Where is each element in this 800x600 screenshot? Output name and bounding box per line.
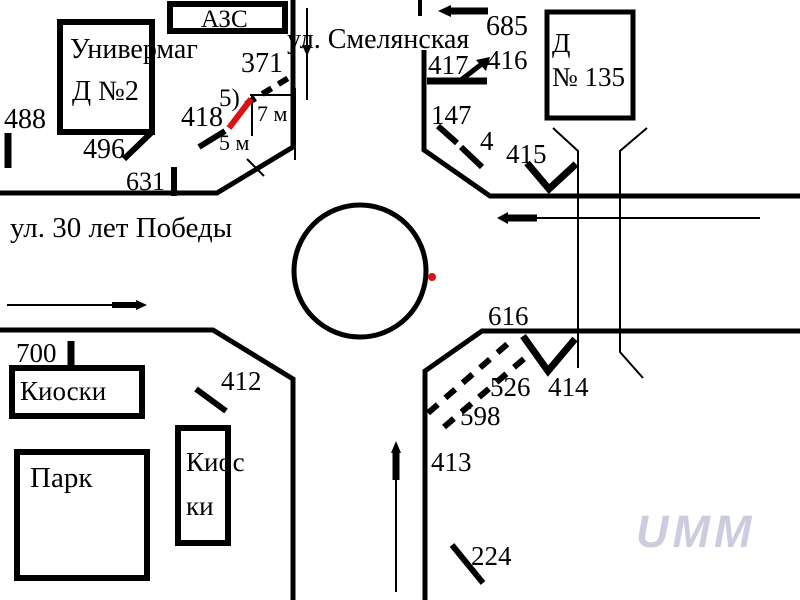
building-label-house135-2: № 135 <box>552 64 625 91</box>
point-label-418: 418 <box>181 104 223 132</box>
point-label-413: 413 <box>431 449 472 476</box>
mark-147-b <box>461 147 482 167</box>
point-label-412: 412 <box>221 368 262 395</box>
mark-414-check <box>523 336 575 371</box>
point-label-416: 416 <box>487 47 528 74</box>
point-label-414: 414 <box>548 374 589 401</box>
building-label-azs: АЗС <box>201 7 248 32</box>
building-label-house135-1: Д <box>552 30 570 57</box>
point-label-700: 700 <box>16 340 57 367</box>
building-kiosk2 <box>178 428 228 543</box>
point-label-224: 224 <box>471 543 512 570</box>
point-label-488: 488 <box>4 106 46 134</box>
mark-496 <box>124 132 152 159</box>
point-label-147: 147 <box>431 102 472 129</box>
building-label-kiosk2-1: Киос <box>186 449 245 476</box>
red-collision-point <box>428 273 436 281</box>
topright-arrow-tip <box>438 5 451 17</box>
building-label-univermag: Универмаг <box>70 36 198 64</box>
point-label-598: 598 <box>460 403 501 430</box>
point-label-415: 415 <box>506 141 547 168</box>
roundabout-circle <box>294 205 426 337</box>
point-label-616: 616 <box>488 303 529 330</box>
building-label-park: Парк <box>30 464 92 493</box>
point-label-417: 417 <box>428 52 469 79</box>
point-label-685: 685 <box>486 13 528 41</box>
watermark-umm: UMM <box>636 506 755 558</box>
east-arrow-tip <box>497 212 508 224</box>
street-label-pobedy: ул. 30 лет Победы <box>10 214 232 243</box>
south-arrow-tip <box>391 441 401 453</box>
point-label-371: 371 <box>241 50 283 78</box>
building-label-kiosk2-2: ки <box>186 493 214 520</box>
point-label-526: 526 <box>490 374 531 401</box>
building-label-univermag-house: Д №2 <box>72 78 139 106</box>
point-label-496: 496 <box>83 136 125 164</box>
west-arrow-tip <box>136 300 147 310</box>
measure-label-5: 5) <box>219 86 240 111</box>
building-label-kiosks: Киоски <box>20 378 106 405</box>
driveway-edge-right <box>620 128 647 378</box>
point-label-4: 4 <box>480 128 494 155</box>
measure-label-7m: 7 м <box>257 103 287 125</box>
measure-label-5m: 5 м <box>219 132 249 154</box>
point-label-631: 631 <box>126 169 165 195</box>
accident-scheme-canvas: ул. Смелянская ул. 30 лет Победы Универм… <box>0 0 800 600</box>
